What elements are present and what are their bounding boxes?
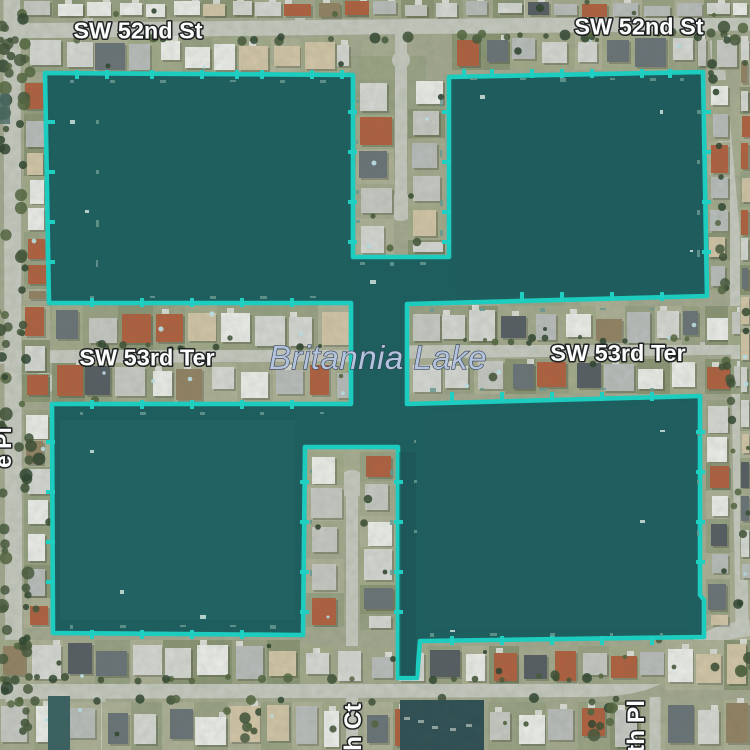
svg-text:h Ct: h Ct bbox=[340, 703, 367, 750]
svg-text:Britannia Lake: Britannia Lake bbox=[269, 339, 487, 376]
svg-text:th Pl: th Pl bbox=[623, 700, 650, 750]
svg-text:e Pl: e Pl bbox=[0, 427, 16, 468]
svg-text:SW 52nd St: SW 52nd St bbox=[574, 14, 703, 40]
svg-text:SW 53rd Ter: SW 53rd Ter bbox=[550, 340, 685, 366]
svg-text:SW 52nd St: SW 52nd St bbox=[73, 18, 202, 44]
svg-text:SW 53rd Ter: SW 53rd Ter bbox=[79, 345, 214, 371]
